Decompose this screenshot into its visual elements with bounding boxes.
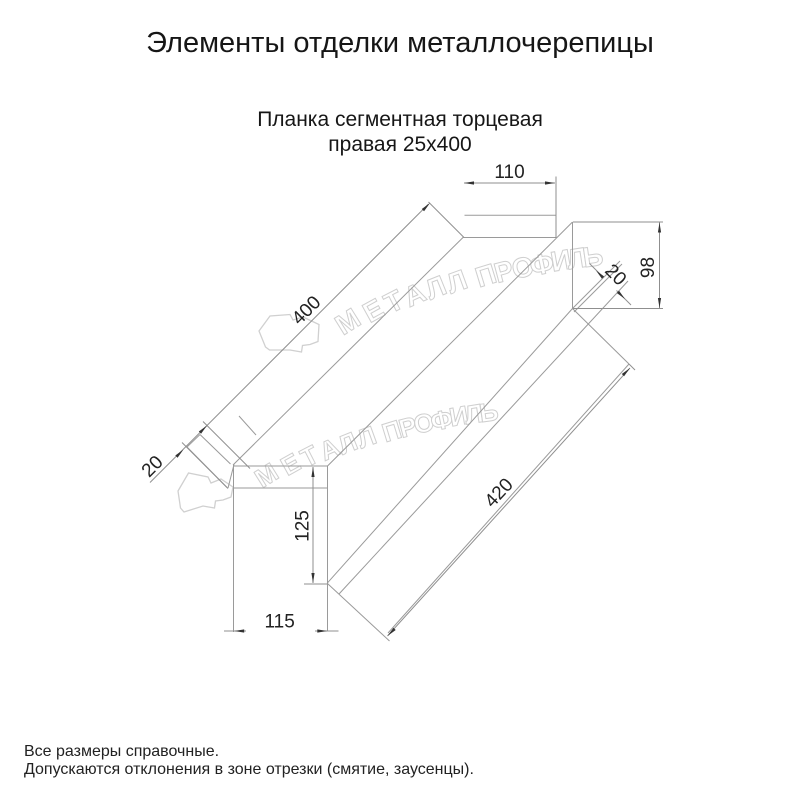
- svg-text:20: 20: [600, 260, 630, 290]
- svg-text:Ь: Ь: [581, 240, 605, 273]
- svg-text:110: 110: [494, 162, 524, 183]
- svg-text:400: 400: [288, 292, 325, 329]
- svg-text:98: 98: [638, 257, 659, 278]
- svg-text:420: 420: [481, 474, 518, 512]
- svg-text:20: 20: [138, 452, 168, 482]
- svg-text:125: 125: [293, 510, 314, 542]
- svg-text:115: 115: [265, 612, 295, 633]
